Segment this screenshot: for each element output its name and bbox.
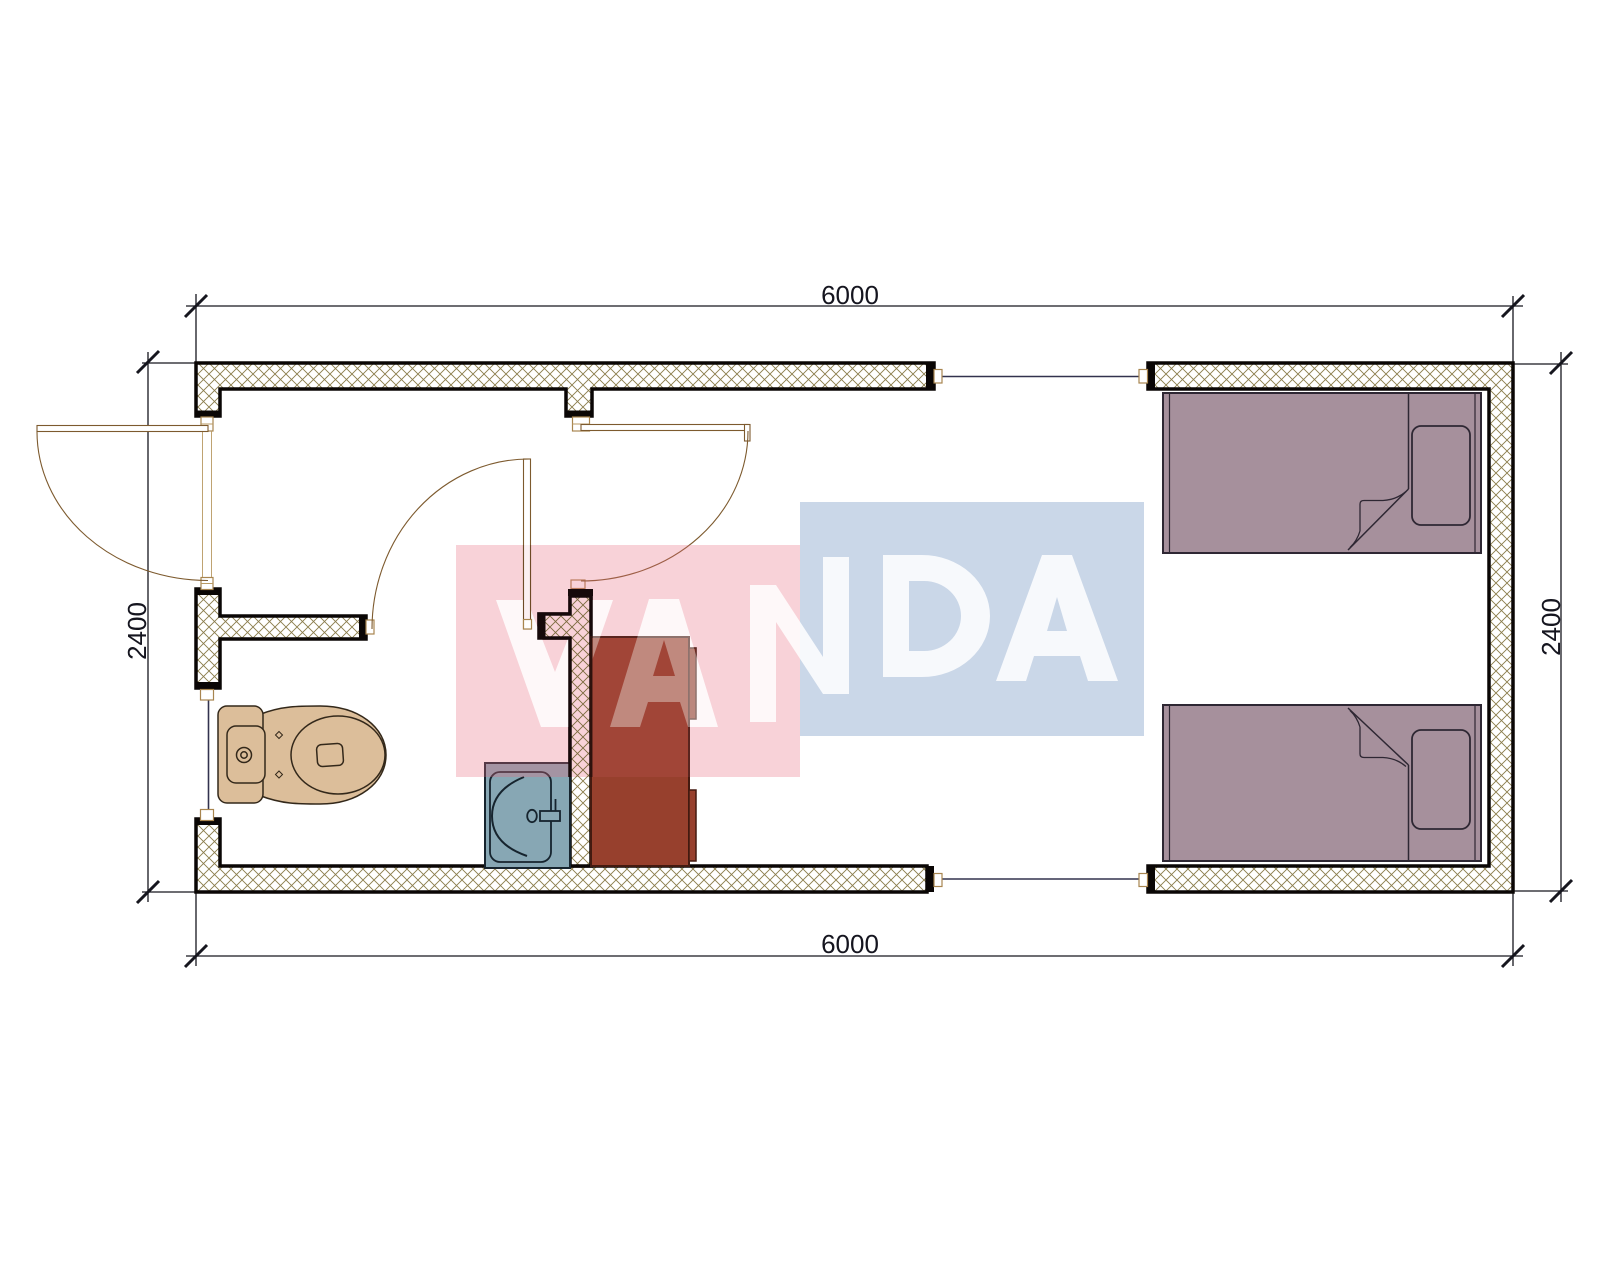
svg-text:2400: 2400 (122, 602, 152, 660)
svg-text:2400: 2400 (1536, 598, 1566, 656)
svg-text:6000: 6000 (821, 929, 879, 959)
svg-text:6000: 6000 (821, 280, 879, 310)
